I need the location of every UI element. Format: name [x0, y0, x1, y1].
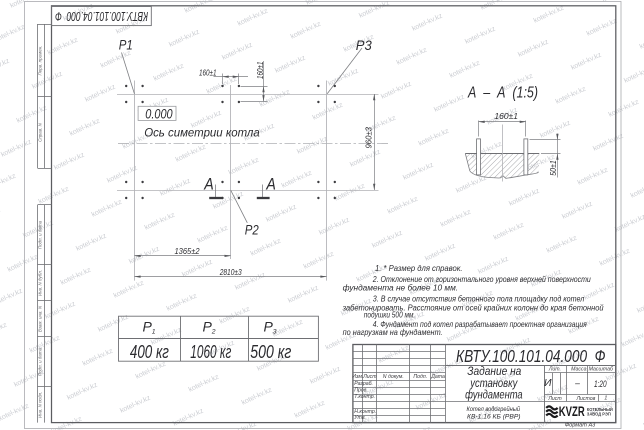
svg-text:1: 1	[604, 396, 607, 402]
svg-text:2810±3: 2810±3	[219, 267, 242, 277]
svg-text:КВТУ.100.101.04.000 Ф: КВТУ.100.101.04.000 Ф	[456, 346, 606, 366]
svg-text:Формат А3: Формат А3	[565, 423, 596, 429]
svg-text:Масса: Масса	[571, 367, 586, 373]
svg-text:500 кг: 500 кг	[250, 342, 291, 362]
svg-text:400 кг: 400 кг	[130, 342, 169, 362]
svg-text:Листов: Листов	[575, 396, 595, 402]
svg-text:Утв.: Утв.	[354, 415, 366, 421]
svg-text:Справ. N: Справ. N	[37, 122, 42, 142]
svg-text:1365±2: 1365±2	[175, 246, 200, 256]
svg-text:Инв. N подл.: Инв. N подл.	[37, 392, 42, 418]
svg-text:160±1: 160±1	[199, 68, 217, 78]
svg-text:Лист: Лист	[362, 374, 377, 380]
svg-text:Пров.: Пров.	[354, 387, 368, 393]
svg-text:N докум.: N докум.	[383, 374, 404, 380]
svg-text:А: А	[266, 176, 276, 194]
svg-text:Лист: Лист	[547, 396, 562, 402]
svg-text:Р1: Р1	[119, 38, 133, 53]
svg-text:Р3: Р3	[356, 38, 372, 53]
svg-text:960±3: 960±3	[364, 127, 374, 149]
svg-text:Изм.: Изм.	[352, 374, 363, 380]
svg-text:Перв. примен.: Перв. примен.	[37, 46, 42, 76]
svg-text:Взам. инв. N: Взам. инв. N	[37, 305, 42, 332]
svg-text:KVZR: KVZR	[559, 403, 585, 419]
svg-text:фундамента: фундамента	[465, 389, 523, 401]
svg-text:Разраб.: Разраб.	[354, 381, 373, 387]
svg-text:Инв. N дубл.: Инв. N дубл.	[37, 270, 42, 296]
svg-text:160±1: 160±1	[494, 111, 518, 121]
svg-text:Т.контр.: Т.контр.	[354, 394, 375, 400]
svg-text:Задание на: Задание на	[467, 366, 521, 378]
svg-text:фундамента не более 10 мм.: фундамента не более 10 мм.	[343, 282, 459, 292]
svg-text:1. * Размер для справок.: 1. * Размер для справок.	[375, 263, 463, 273]
svg-text:Р2: Р2	[245, 223, 259, 238]
svg-text:–: –	[574, 378, 580, 388]
svg-text:Ось симетрии котла: Ось симетрии котла	[144, 126, 260, 140]
svg-text:Н.контр.: Н.контр.	[354, 409, 376, 415]
svg-text:Подп. и дата: Подп. и дата	[37, 347, 42, 376]
svg-text:установку: установку	[469, 378, 518, 390]
svg-text:Котел водогрейный: Котел водогрейный	[467, 405, 521, 413]
svg-text:50±1: 50±1	[548, 160, 558, 176]
svg-text:1060 кг: 1060 кг	[190, 342, 231, 362]
svg-text:ЗАВОД РЭП: ЗАВОД РЭП	[587, 412, 611, 417]
svg-text:И: И	[544, 377, 552, 389]
svg-text:Подп. и дата: Подп. и дата	[37, 220, 42, 249]
svg-text:1:20: 1:20	[594, 379, 607, 390]
svg-text:по нагрузкам на фундамент.: по нагрузкам на фундамент.	[343, 327, 443, 337]
svg-text:А: А	[203, 176, 213, 194]
svg-text:КВТУ.100.101.04.000 Ф: КВТУ.100.101.04.000 Ф	[55, 9, 148, 23]
svg-text:Масштаб: Масштаб	[589, 367, 614, 373]
svg-text:0.000: 0.000	[145, 105, 172, 121]
svg-text:Дата: Дата	[430, 374, 445, 380]
svg-text:КВ-1,16 КБ (РВР): КВ-1,16 КБ (РВР)	[467, 413, 521, 420]
svg-text:Подп.: Подп.	[413, 374, 427, 380]
svg-text:Лит.: Лит.	[548, 367, 561, 373]
svg-text:А – А (1:5): А – А (1:5)	[467, 85, 538, 102]
svg-text:160±1: 160±1	[255, 62, 265, 80]
